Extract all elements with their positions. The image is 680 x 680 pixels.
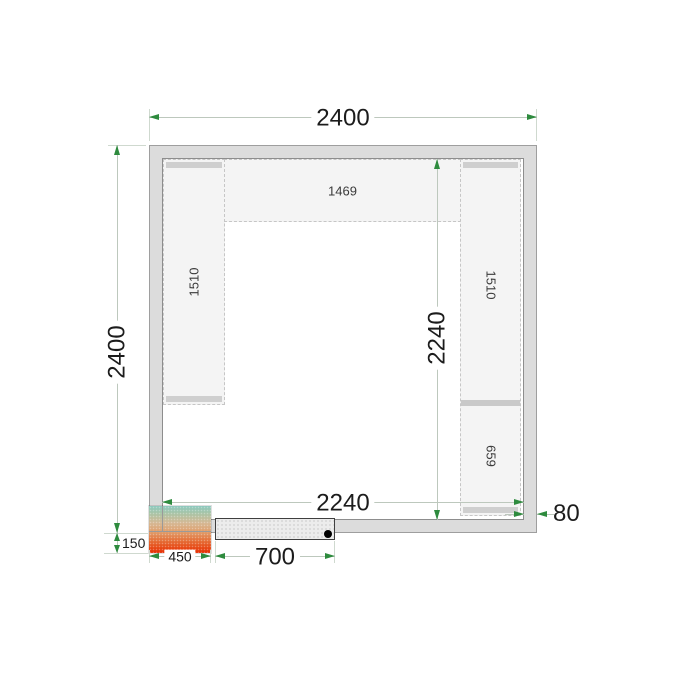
shelf-end-cap bbox=[166, 396, 222, 402]
dim-label-outer-width: 2400 bbox=[311, 105, 374, 130]
dim-arrow-icon bbox=[527, 114, 537, 120]
shelf-divider bbox=[461, 400, 520, 406]
shelf-end-cap bbox=[463, 507, 518, 513]
shelf-right: 1510 659 bbox=[460, 159, 521, 516]
dim-arrow-icon bbox=[514, 511, 524, 517]
dim-arrow-icon bbox=[149, 553, 159, 559]
dim-label-wall-thickness: 80 bbox=[553, 500, 580, 528]
dim-label-inner-depth: 2240 bbox=[424, 306, 449, 369]
cold-room-plan: 1510 1469 1510 659 bbox=[0, 0, 680, 680]
door bbox=[215, 518, 335, 540]
door-handle-dot bbox=[324, 530, 332, 538]
wall-edge-over-unit bbox=[162, 506, 163, 531]
shelf-top-length-label: 1469 bbox=[328, 183, 357, 198]
dim-arrow-icon bbox=[114, 523, 120, 533]
dim-arrow-icon bbox=[114, 533, 120, 541]
dim-arrow-icon bbox=[201, 553, 211, 559]
dim-label-inner-width: 2240 bbox=[311, 490, 374, 515]
shelf-left-length-label: 1510 bbox=[187, 268, 202, 297]
dim-arrow-icon bbox=[215, 553, 225, 559]
dim-arrow-icon bbox=[325, 553, 335, 559]
dim-label-unit-protrusion: 150 bbox=[122, 535, 145, 551]
extension-line bbox=[334, 541, 335, 563]
dim-arrow-icon bbox=[434, 159, 440, 169]
dim-label-outer-depth: 2400 bbox=[104, 320, 129, 383]
shelf-top: 1469 bbox=[224, 159, 461, 222]
dim-arrow-icon bbox=[514, 499, 524, 505]
extension-line bbox=[104, 553, 148, 554]
wall-edge-over-unit bbox=[149, 531, 211, 532]
dim-arrow-icon bbox=[162, 499, 172, 505]
shelf-end-cap bbox=[463, 162, 518, 168]
shelf-end-cap bbox=[166, 162, 222, 168]
dim-arrow-icon bbox=[149, 114, 159, 120]
shelf-right-upper-length-label: 1510 bbox=[483, 271, 498, 300]
cooling-unit bbox=[149, 506, 211, 553]
extension-line bbox=[104, 533, 148, 534]
dim-arrow-icon bbox=[114, 545, 120, 553]
dim-label-door-width: 700 bbox=[250, 544, 300, 569]
extension-line bbox=[215, 541, 216, 563]
shelf-left: 1510 bbox=[163, 159, 225, 405]
dim-label-unit-width: 450 bbox=[164, 550, 195, 565]
dim-arrow-icon bbox=[537, 511, 547, 517]
shelf-right-lower-length-label: 659 bbox=[483, 445, 498, 467]
dim-arrow-icon bbox=[434, 510, 440, 520]
dim-arrow-icon bbox=[114, 145, 120, 155]
